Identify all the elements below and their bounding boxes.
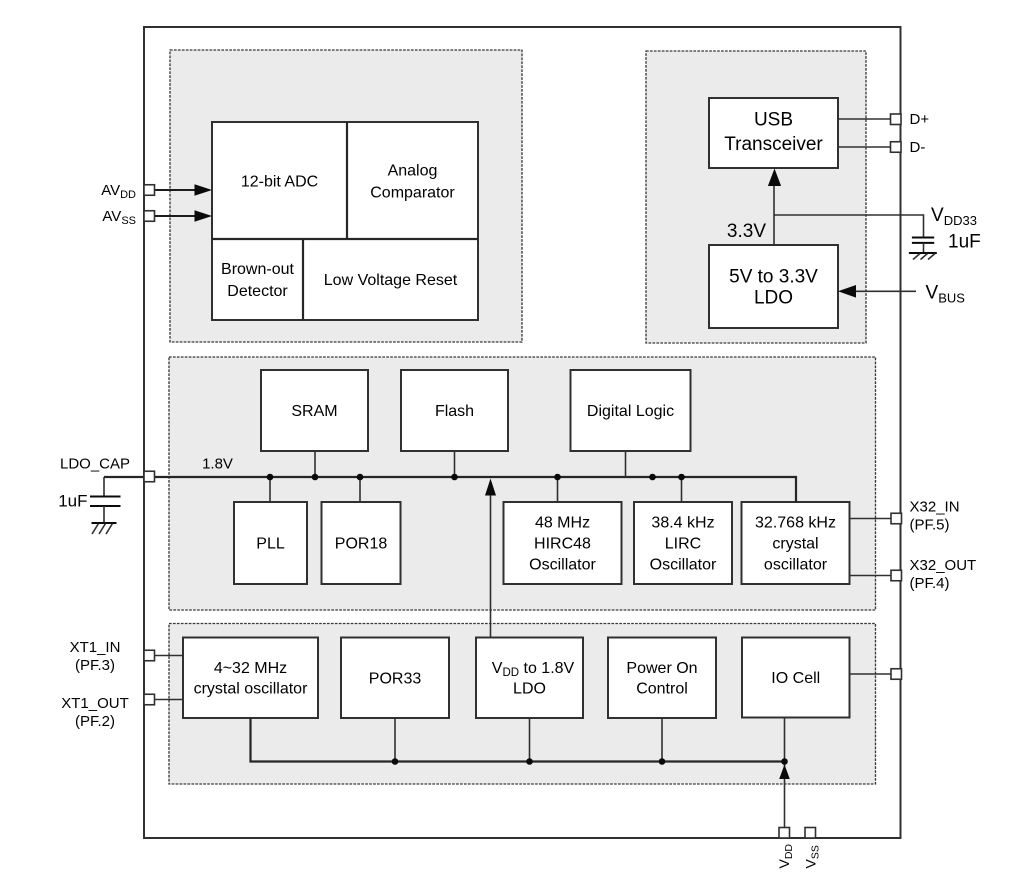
svg-text:USB: USB [754, 110, 793, 131]
svg-text:4~32 MHz: 4~32 MHz [214, 660, 287, 677]
svg-text:oscillator: oscillator [764, 557, 828, 574]
svg-text:1uF: 1uF [948, 232, 981, 253]
svg-text:3.3V: 3.3V [727, 221, 766, 242]
svg-text:Transceiver: Transceiver [724, 134, 823, 155]
svg-text:Analog: Analog [388, 163, 438, 180]
svg-text:38.4 kHz: 38.4 kHz [651, 515, 714, 532]
svg-text:POR18: POR18 [335, 536, 388, 553]
svg-text:48 MHz: 48 MHz [535, 515, 590, 532]
svg-text:Oscillator: Oscillator [529, 557, 596, 574]
svg-text:(PF.2): (PF.2) [75, 713, 115, 730]
svg-text:SRAM: SRAM [291, 403, 337, 420]
svg-text:IO Cell: IO Cell [771, 670, 820, 687]
svg-text:X32_OUT: X32_OUT [910, 557, 977, 574]
svg-text:LDO_CAP: LDO_CAP [60, 456, 130, 473]
svg-text:Comparator: Comparator [370, 185, 455, 202]
svg-text:Power On: Power On [626, 660, 697, 677]
svg-text:D+: D+ [910, 111, 930, 128]
svg-text:Digital Logic: Digital Logic [587, 403, 674, 420]
svg-text:(PF.4): (PF.4) [910, 575, 950, 592]
svg-text:Oscillator: Oscillator [650, 557, 717, 574]
svg-text:LIRC: LIRC [665, 536, 701, 553]
svg-text:1uF: 1uF [58, 492, 87, 511]
svg-text:crystal: crystal [772, 536, 818, 553]
svg-text:1.8V: 1.8V [202, 456, 233, 473]
svg-text:5V to 3.3V: 5V to 3.3V [729, 267, 818, 288]
svg-text:POR33: POR33 [369, 671, 422, 688]
svg-text:HIRC48: HIRC48 [534, 536, 591, 553]
svg-text:LDO: LDO [754, 288, 793, 309]
svg-text:D-: D- [910, 139, 926, 156]
svg-text:12-bit ADC: 12-bit ADC [241, 174, 318, 191]
svg-text:Flash: Flash [435, 403, 474, 420]
svg-text:(PF.5): (PF.5) [910, 517, 950, 534]
svg-text:(PF.3): (PF.3) [75, 657, 115, 674]
svg-text:crystal oscillator: crystal oscillator [194, 681, 308, 698]
svg-text:XT1_IN: XT1_IN [70, 639, 121, 656]
svg-text:Detector: Detector [227, 283, 288, 300]
svg-text:X32_IN: X32_IN [910, 499, 960, 516]
svg-text:XT1_OUT: XT1_OUT [61, 695, 129, 712]
svg-text:Control: Control [636, 681, 688, 698]
svg-text:Low Voltage Reset: Low Voltage Reset [324, 272, 458, 289]
svg-text:PLL: PLL [256, 536, 285, 553]
svg-text:LDO: LDO [513, 681, 546, 698]
svg-text:32.768 kHz: 32.768 kHz [755, 515, 836, 532]
svg-text:Brown-out: Brown-out [221, 261, 294, 278]
